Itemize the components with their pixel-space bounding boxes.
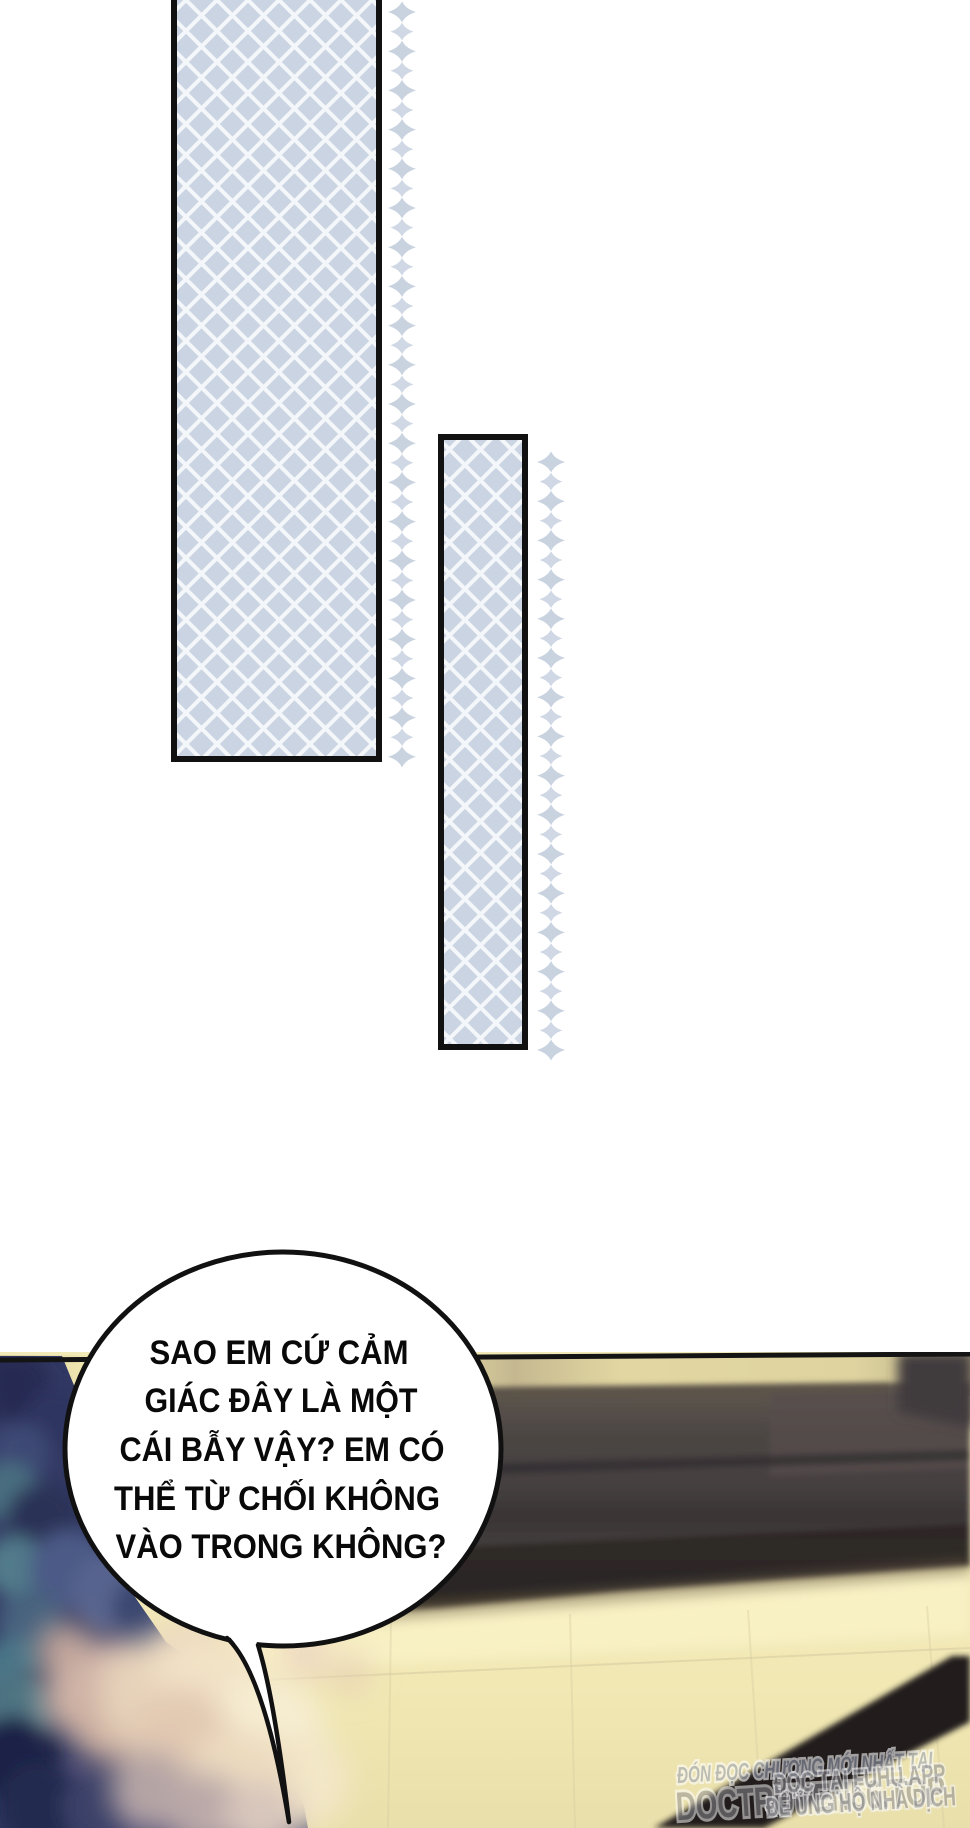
svg-text:SAO EM CỨ CẢM: SAO EM CỨ CẢM bbox=[150, 1334, 409, 1372]
svg-text:THỂ TỪ CHỐI KHÔNG: THỂ TỪ CHỐI KHÔNG bbox=[114, 1479, 440, 1518]
svg-text:VÀO TRONG KHÔNG?: VÀO TRONG KHÔNG? bbox=[116, 1527, 447, 1566]
svg-text:CÁI BẪY VẬY? EM CÓ: CÁI BẪY VẬY? EM CÓ bbox=[120, 1431, 445, 1469]
svg-text:GIÁC ĐÂY LÀ MỘT: GIÁC ĐÂY LÀ MỘT bbox=[145, 1381, 418, 1420]
